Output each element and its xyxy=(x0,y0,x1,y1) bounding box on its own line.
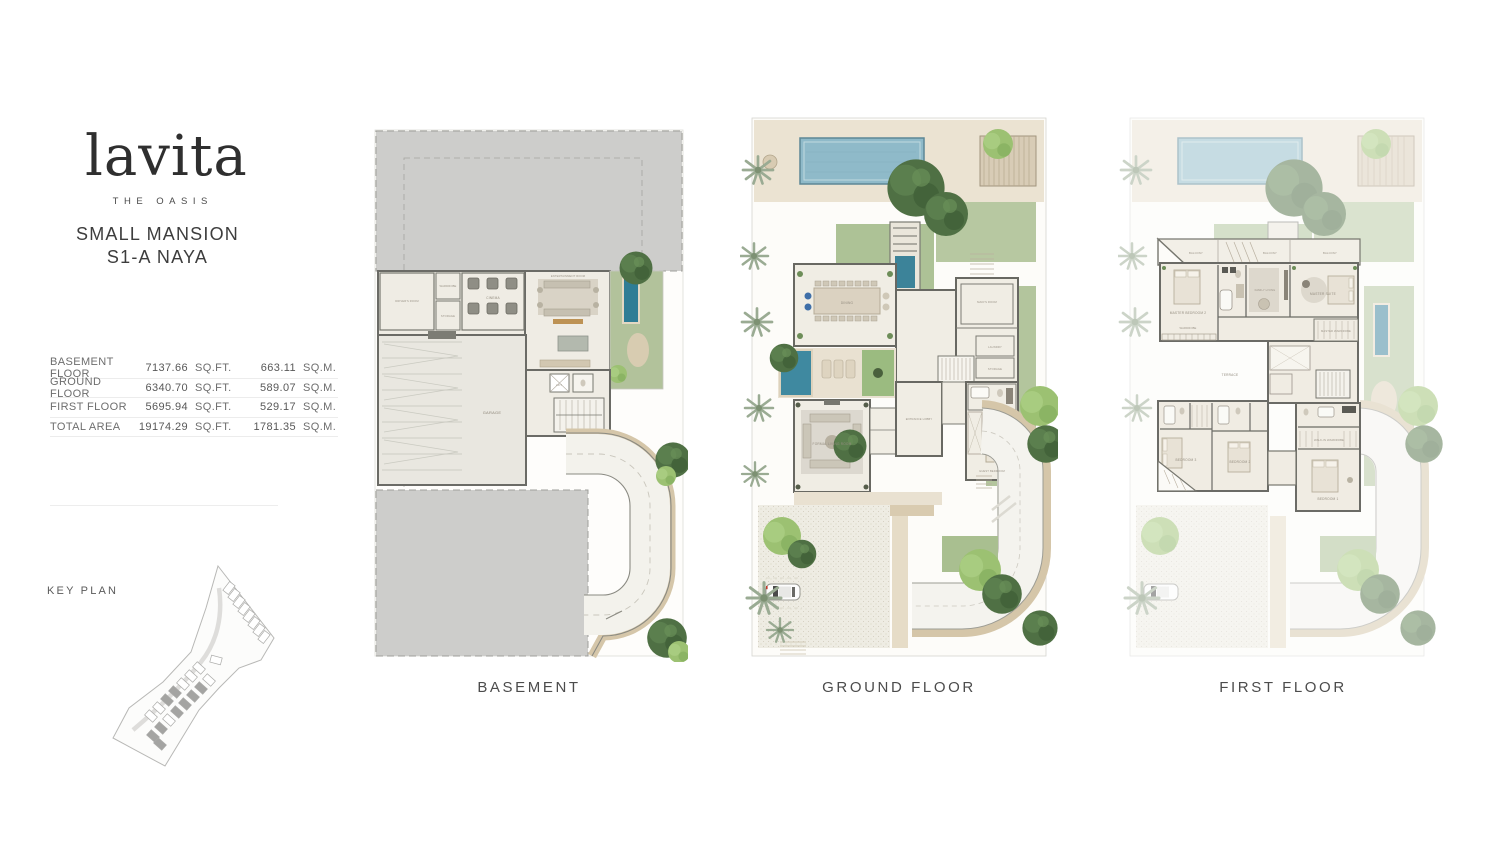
room-label: LIFT xyxy=(556,383,562,387)
room-label: BALCONY xyxy=(1323,251,1337,255)
area-sqm-unit: SQ.M. xyxy=(296,401,338,413)
room-label: TERRACE xyxy=(1222,373,1239,377)
unit-code: S1-A NAYA xyxy=(30,246,285,269)
tree-icon xyxy=(788,540,817,569)
area-sqm-unit: SQ.M. xyxy=(296,382,338,394)
basement-plan-svg: DRIVER'S ROOM WARDROBE STORAGE CINEMA EN… xyxy=(370,122,688,662)
room-label: MASTER BEDROOM 2 xyxy=(1170,311,1207,315)
area-sqft-unit: SQ.FT. xyxy=(188,362,236,374)
brand-tagline: THE OASIS xyxy=(85,196,235,207)
unit-type: SMALL MANSION xyxy=(30,223,285,246)
room-label: STORAGE xyxy=(988,367,1002,371)
guest-bath xyxy=(942,382,966,424)
south-terrace xyxy=(794,492,942,505)
area-sqm: 1781.35 xyxy=(236,421,296,433)
room-label: BALCONY xyxy=(1189,251,1203,255)
room-label: DINING xyxy=(841,301,854,305)
ground-plan-svg: DINING MAID'S ROOM LAUNDRY STORAGE FORMA… xyxy=(740,108,1058,666)
ground-floor-plan: DINING MAID'S ROOM LAUNDRY STORAGE FORMA… xyxy=(740,108,1058,666)
area-sqft: 5695.94 xyxy=(130,401,188,413)
unit-title: SMALL MANSION S1-A NAYA xyxy=(30,223,285,269)
room-label: WALK-IN WARDROBE xyxy=(1314,438,1344,442)
caption-ground: GROUND FLOOR xyxy=(740,679,1058,696)
area-sqm: 529.17 xyxy=(236,401,296,413)
unexcavated-mass-top xyxy=(376,131,682,271)
room-label: GARAGE xyxy=(483,410,502,415)
area-sqm: 589.07 xyxy=(236,382,296,394)
first-plan-svg: BALCONY BALCONY BALCONY MASTER BEDROOM 2… xyxy=(1118,108,1448,666)
area-table: BASEMENT FLOOR 7137.66 SQ.FT. 663.11 SQ.… xyxy=(50,359,338,437)
tree-icon xyxy=(924,192,968,236)
room-label: MAID'S ROOM xyxy=(977,300,997,304)
bedroom-wing-left xyxy=(1158,401,1268,491)
courtyard xyxy=(770,344,896,398)
area-sqm: 663.11 xyxy=(236,362,296,374)
area-row-total: TOTAL AREA 19174.29 SQ.FT. 1781.35 SQ.M. xyxy=(50,418,338,438)
bathtub xyxy=(1164,406,1175,424)
first-floor-plan: BALCONY BALCONY BALCONY MASTER BEDROOM 2… xyxy=(1118,108,1448,666)
room-label: WARDROBE xyxy=(440,284,457,288)
area-sqft-unit: SQ.FT. xyxy=(188,421,236,433)
bedroom-wing-right xyxy=(1296,403,1360,511)
room-label: BEDROOM 1 xyxy=(1318,497,1339,501)
powder-room xyxy=(870,408,896,454)
area-row-ground: GROUND FLOOR 6340.70 SQ.FT. 589.07 SQ.M. xyxy=(50,379,338,399)
brand-logo: lavita xyxy=(85,126,235,188)
area-row-first: FIRST FLOOR 5695.94 SQ.FT. 529.17 SQ.M. xyxy=(50,398,338,418)
room-label: BEDROOM 3 xyxy=(1176,458,1197,462)
tree-icon xyxy=(983,129,1013,159)
room-label: BALCONY xyxy=(1263,251,1277,255)
area-sqft: 6340.70 xyxy=(130,382,188,394)
area-label: GROUND FLOOR xyxy=(50,376,130,400)
room-label: FAMILY LIVING xyxy=(1255,288,1276,292)
area-sqft-unit: SQ.FT. xyxy=(188,401,236,413)
room-label: LAUNDRY xyxy=(988,345,1002,349)
entry-walk xyxy=(890,505,934,516)
room-label: ENTRANCE LOBBY xyxy=(906,417,933,421)
area-sqm-unit: SQ.M. xyxy=(296,421,338,433)
tree-icon xyxy=(834,430,867,463)
stairs xyxy=(938,356,974,382)
area-sqm-unit: SQ.M. xyxy=(296,362,338,374)
area-sqft-unit: SQ.FT. xyxy=(188,382,236,394)
key-plan-map xyxy=(103,558,293,780)
bathtub xyxy=(1218,406,1229,424)
stairs xyxy=(1316,370,1350,398)
room-label: STORAGE xyxy=(441,314,455,318)
floor-plan-sheet: lavita THE OASIS SMALL MANSION S1-A NAYA… xyxy=(0,0,1500,850)
caption-basement: BASEMENT xyxy=(370,679,688,696)
room-label: CINEMA xyxy=(486,296,500,300)
tree-icon xyxy=(770,344,799,373)
room-label: DRIVER'S ROOM xyxy=(395,299,419,303)
room-label: FORMAL LIVING ROOM xyxy=(813,442,852,446)
tree-icon xyxy=(609,365,627,383)
stair-lift-core xyxy=(526,370,610,436)
tree-icon xyxy=(982,574,1022,614)
area-sqft: 7137.66 xyxy=(130,362,188,374)
bathtub xyxy=(1318,407,1334,417)
unexcavated-mass-bottom xyxy=(376,490,588,656)
garage xyxy=(378,331,526,485)
room-label: BEDROOM 2 xyxy=(1230,460,1251,464)
area-label: FIRST FLOOR xyxy=(50,401,130,413)
tree-icon xyxy=(1022,610,1057,645)
bridge xyxy=(1268,451,1296,485)
area-label: TOTAL AREA xyxy=(50,421,130,433)
basement-courtyard xyxy=(609,252,663,390)
bathtub xyxy=(1220,290,1232,310)
tree-icon xyxy=(656,466,676,486)
room-label: MASTER WARDROBE xyxy=(1321,329,1351,333)
basement-floor-plan: DRIVER'S ROOM WARDROBE STORAGE CINEMA EN… xyxy=(370,122,688,662)
tree-icon xyxy=(620,252,653,285)
room-label: ENTERTAINMENT ROOM xyxy=(551,274,586,278)
caption-first: FIRST FLOOR xyxy=(1118,679,1448,696)
room-label: WARDROBE xyxy=(1180,326,1197,330)
sidebar-divider xyxy=(50,505,278,506)
room-label: GUEST BEDROOM xyxy=(979,469,1005,473)
key-plan-svg xyxy=(103,558,293,780)
room-label: MASTER SUITE xyxy=(1310,292,1336,296)
area-sqft: 19174.29 xyxy=(130,421,188,433)
